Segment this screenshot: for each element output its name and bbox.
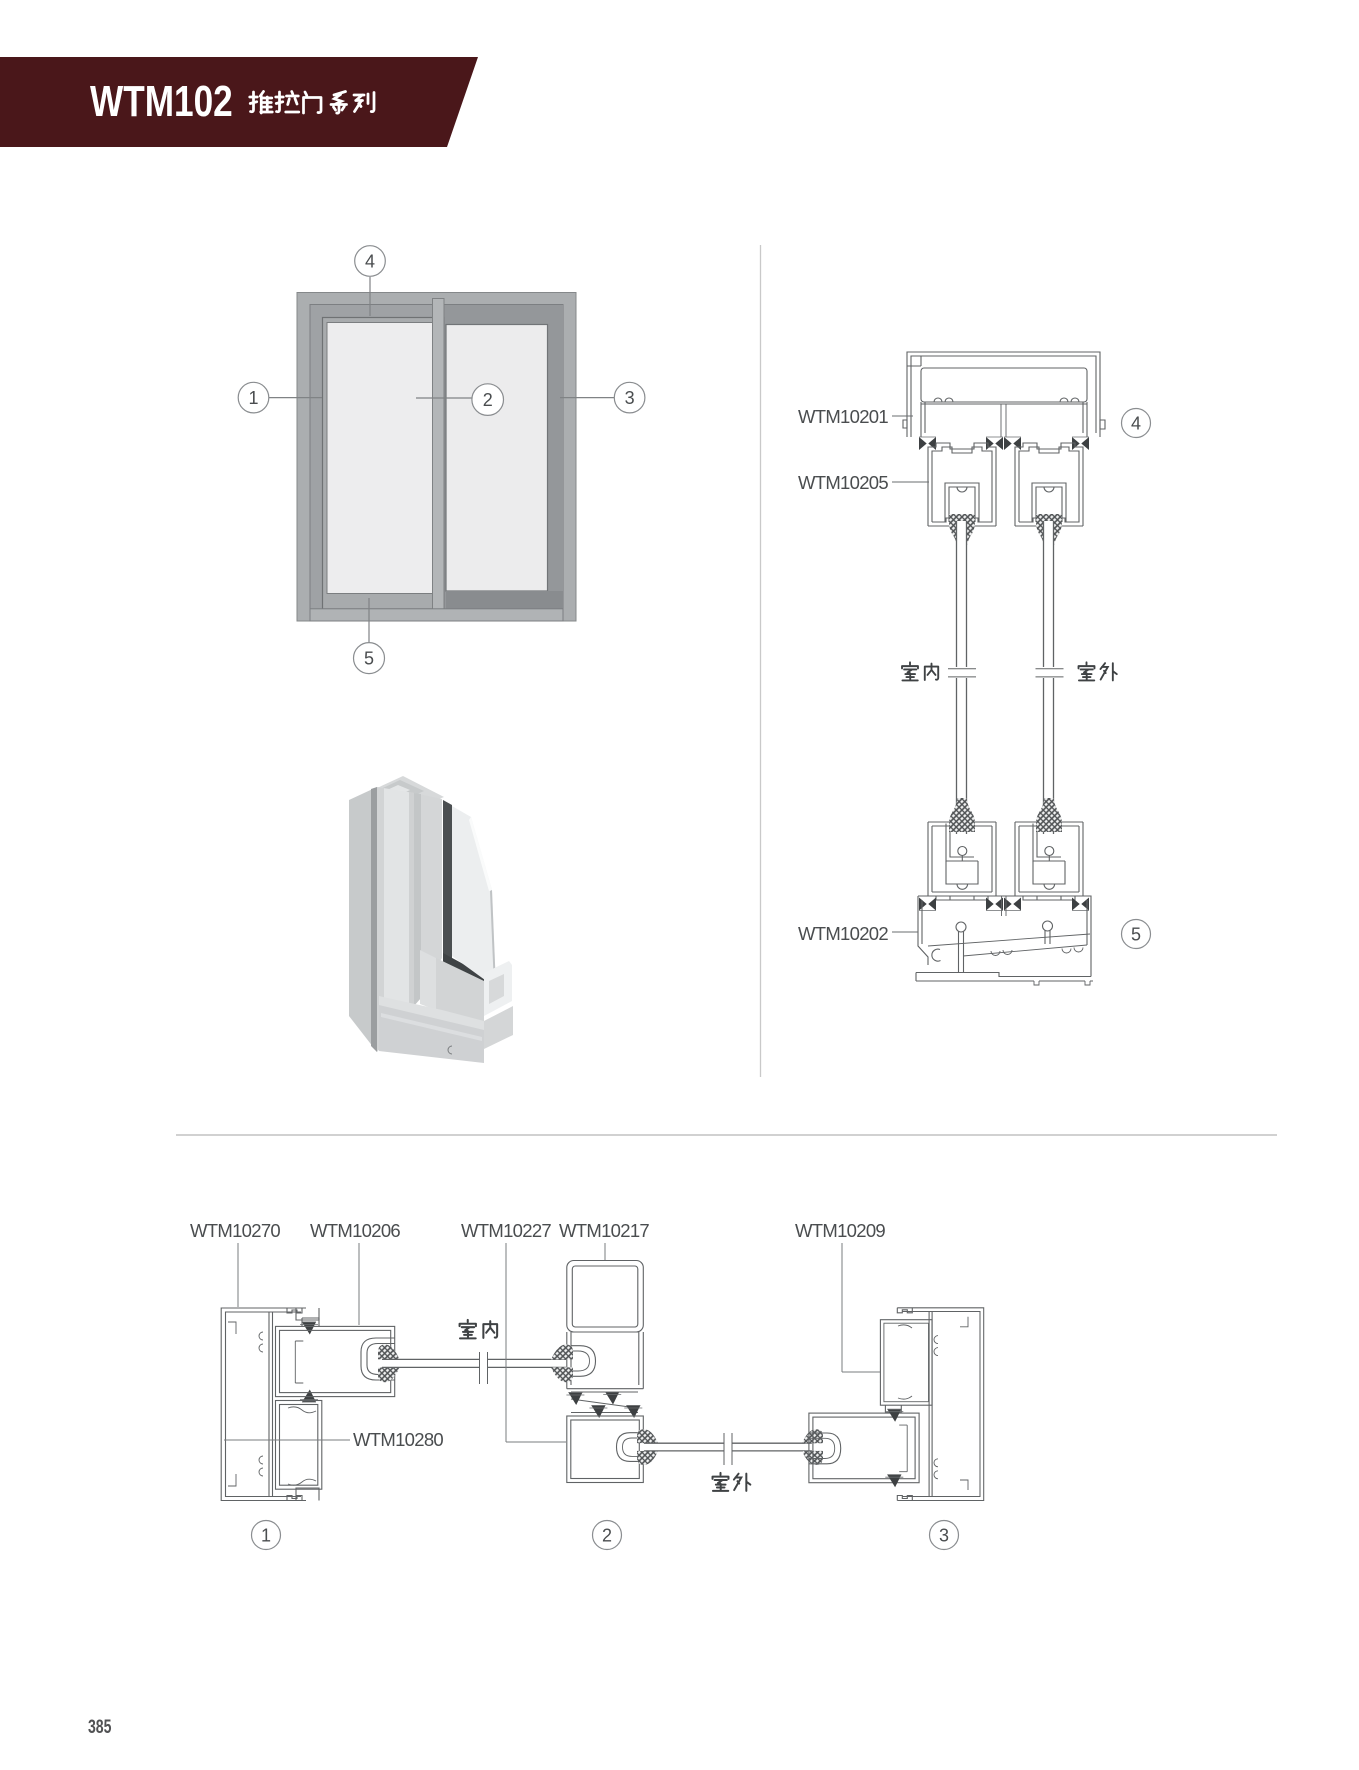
svg-text:WTM10205: WTM10205 <box>798 472 888 493</box>
svg-text:3: 3 <box>939 1526 949 1546</box>
svg-text:WTM10217: WTM10217 <box>559 1220 649 1241</box>
svg-text:WTM10227: WTM10227 <box>461 1220 551 1241</box>
svg-text:1: 1 <box>248 388 258 408</box>
svg-text:1: 1 <box>261 1526 271 1546</box>
svg-text:4: 4 <box>1131 414 1141 434</box>
svg-text:WTM10270: WTM10270 <box>190 1220 280 1241</box>
svg-text:WTM10280: WTM10280 <box>353 1429 443 1450</box>
svg-text:5: 5 <box>364 649 374 669</box>
svg-text:2: 2 <box>602 1526 612 1546</box>
svg-text:WTM10201: WTM10201 <box>798 406 888 427</box>
svg-text:WTM10202: WTM10202 <box>798 923 888 944</box>
svg-text:4: 4 <box>365 252 375 272</box>
svg-text:WTM10206: WTM10206 <box>310 1220 400 1241</box>
svg-text:385: 385 <box>88 1716 111 1738</box>
svg-text:WTM10209: WTM10209 <box>795 1220 885 1241</box>
svg-text:3: 3 <box>625 388 635 408</box>
svg-text:WTM102: WTM102 <box>90 77 233 126</box>
svg-text:2: 2 <box>483 390 493 410</box>
svg-text:5: 5 <box>1131 925 1141 945</box>
